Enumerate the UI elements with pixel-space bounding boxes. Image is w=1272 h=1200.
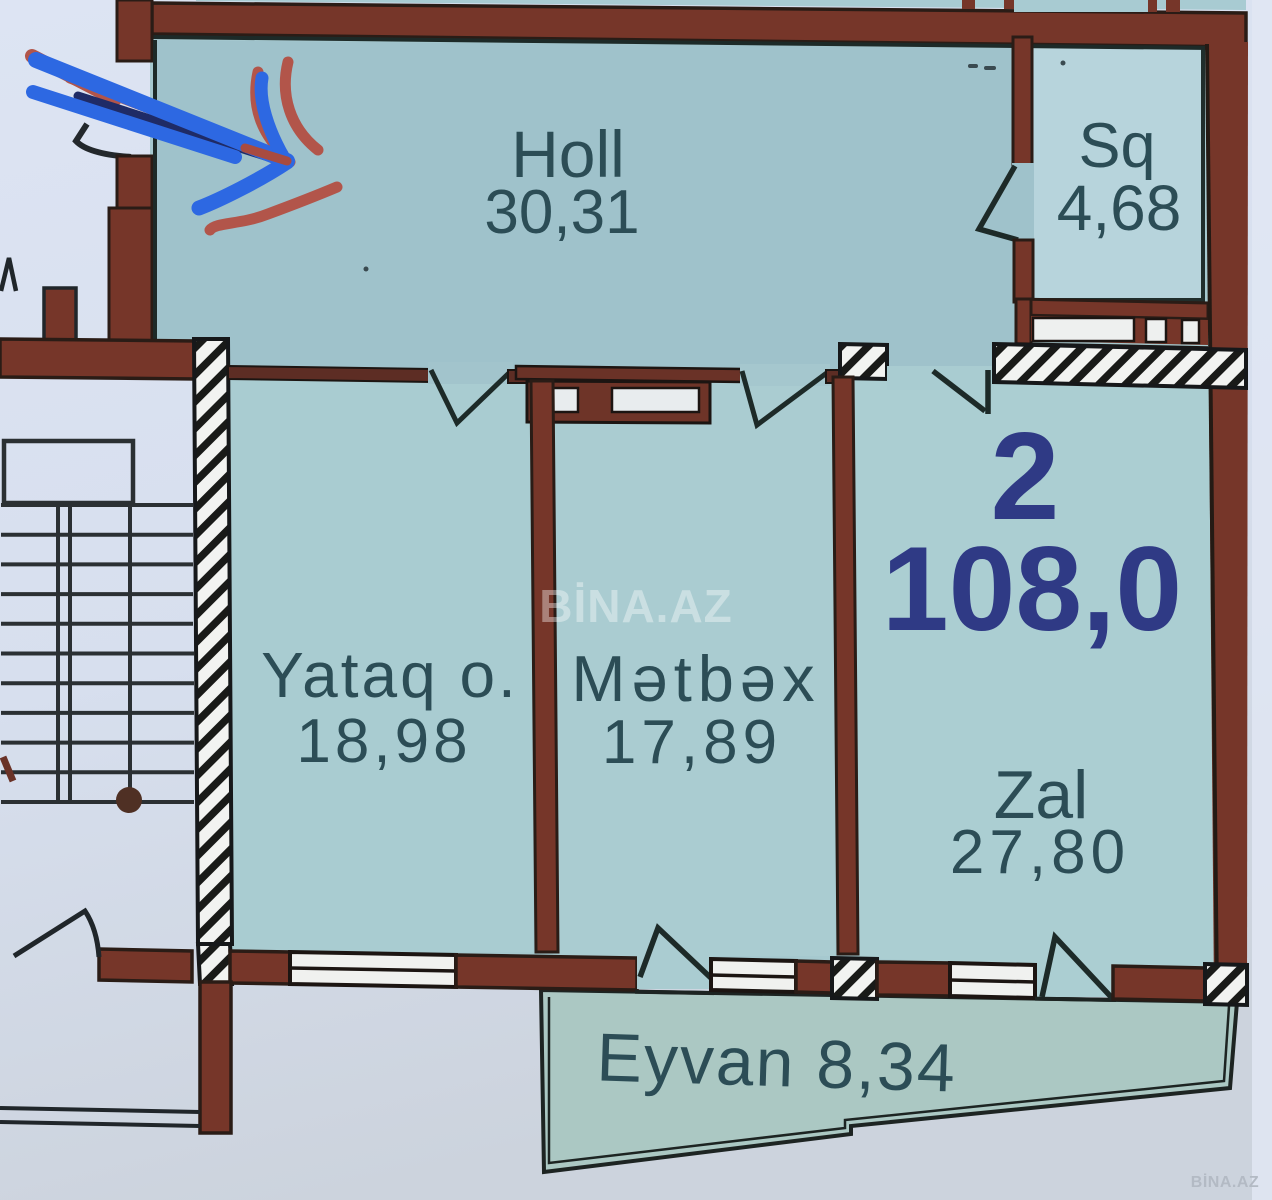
svg-text:Sq: Sq <box>1078 111 1155 181</box>
svg-text:Mətbəx: Mətbəx <box>571 642 820 715</box>
svg-text:30,31: 30,31 <box>484 178 639 247</box>
svg-text:4,68: 4,68 <box>1057 172 1182 244</box>
svg-text:17,89: 17,89 <box>602 708 782 777</box>
svg-text:18,98: 18,98 <box>296 707 471 776</box>
svg-text:Yataq o.: Yataq o. <box>261 639 519 711</box>
svg-text:BİNA.AZ: BİNA.AZ <box>1191 1173 1259 1191</box>
svg-text:Eyvan 8,34: Eyvan 8,34 <box>596 1019 958 1106</box>
svg-text:108,0: 108,0 <box>882 522 1182 656</box>
svg-text:27,80: 27,80 <box>950 818 1130 887</box>
svg-text:BİNA.AZ: BİNA.AZ <box>539 580 733 632</box>
